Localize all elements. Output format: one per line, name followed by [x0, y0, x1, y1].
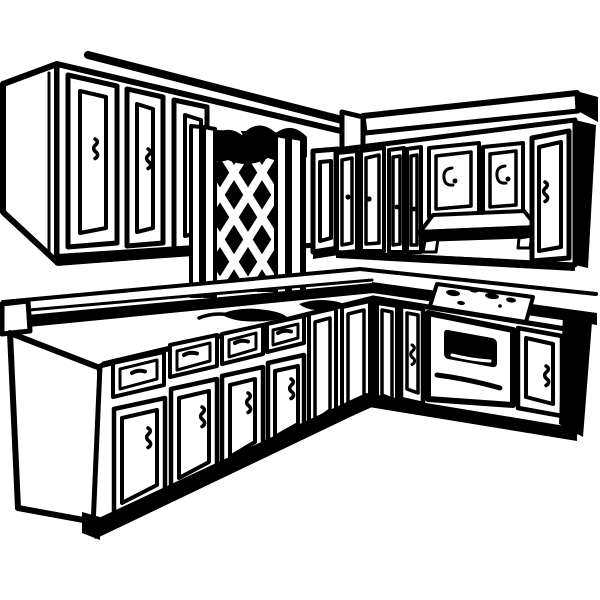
drawer-handle: [278, 331, 291, 333]
drawer-handle: [132, 371, 145, 373]
cabinet-door: [68, 75, 117, 247]
drawer-handle: [184, 353, 197, 355]
door-handle-dot: [412, 207, 417, 212]
cabinet-door: [389, 148, 404, 252]
door-frame: [337, 151, 357, 253]
cabinet-door-wide: [532, 131, 569, 261]
door-handle-dot: [395, 205, 400, 210]
cabinet-door: [337, 151, 357, 253]
door-handle-dot: [345, 194, 350, 199]
counter-end-cap: [2, 301, 30, 334]
kitchen-drawing: Black and white clip-art line drawing of…: [0, 0, 600, 600]
window-post: [276, 135, 287, 294]
cabinet-door: [361, 148, 384, 251]
window-post: [204, 127, 215, 296]
upper-cabinets-right: [336, 120, 596, 271]
burner-dot: [498, 304, 502, 308]
cabinet-door: [518, 328, 562, 416]
cabinet-door: [429, 143, 479, 217]
window-post: [290, 137, 302, 294]
door-frame: [68, 75, 117, 247]
door-handle-dot: [506, 177, 511, 182]
cabinet-door: [483, 143, 523, 214]
corner-stile: [342, 112, 363, 150]
door-handle-dot: [453, 179, 458, 184]
door-frame: [407, 147, 421, 252]
corner-stile: [377, 303, 397, 408]
kitchen-clipart: Black and white clip-art line drawing of…: [0, 0, 600, 600]
cabinet-door: [401, 306, 423, 404]
oven: [428, 313, 513, 405]
cabinet-door: [127, 89, 163, 246]
door-frame: [127, 89, 163, 246]
hood-support: [423, 239, 438, 252]
cabinet-door: [407, 147, 421, 252]
door-handle-dot: [366, 196, 371, 201]
drawer-handle: [235, 341, 248, 343]
window-post: [191, 126, 201, 296]
cabinet-side-panel: [10, 333, 100, 523]
panel-frame: [377, 303, 397, 408]
